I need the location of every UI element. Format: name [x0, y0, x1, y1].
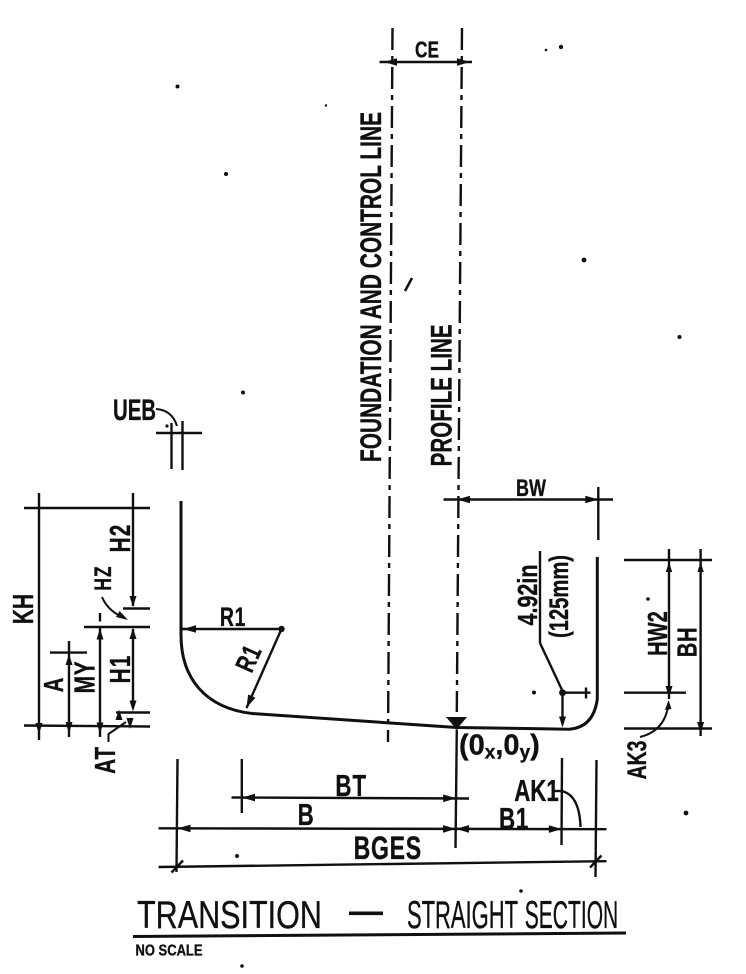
- svg-text:HZ: HZ: [90, 565, 116, 590]
- svg-text:NO SCALE: NO SCALE: [136, 943, 203, 960]
- svg-text:UEB: UEB: [113, 394, 156, 427]
- svg-text:BW: BW: [516, 476, 546, 502]
- svg-text:MY: MY: [69, 661, 101, 694]
- svg-text:BT: BT: [335, 768, 367, 802]
- svg-text:AK1: AK1: [514, 773, 559, 807]
- svg-text:PROFILE LINE: PROFILE LINE: [426, 324, 459, 466]
- svg-text:H1: H1: [105, 655, 137, 684]
- svg-text:HW2: HW2: [643, 611, 674, 656]
- svg-text:A: A: [39, 678, 70, 693]
- svg-text:H2: H2: [105, 524, 137, 553]
- svg-text:TRANSITION: TRANSITION: [137, 894, 322, 937]
- svg-text:4.92in: 4.92in: [512, 565, 543, 626]
- svg-text:SECTION: SECTION: [525, 894, 619, 937]
- svg-text:AT: AT: [90, 746, 122, 774]
- svg-text:KH: KH: [8, 594, 40, 624]
- svg-text:STRAIGHT: STRAIGHT: [407, 894, 518, 937]
- svg-text:R1: R1: [220, 602, 246, 632]
- svg-text:BGES: BGES: [354, 830, 422, 866]
- svg-text:(125mm): (125mm): [544, 555, 574, 638]
- svg-text:BH: BH: [672, 627, 703, 658]
- svg-text:FOUNDATION AND CONTROL LINE: FOUNDATION AND CONTROL LINE: [355, 112, 388, 462]
- svg-text:AK3: AK3: [622, 741, 652, 780]
- svg-text:CE: CE: [415, 38, 439, 63]
- svg-text:B: B: [298, 797, 314, 831]
